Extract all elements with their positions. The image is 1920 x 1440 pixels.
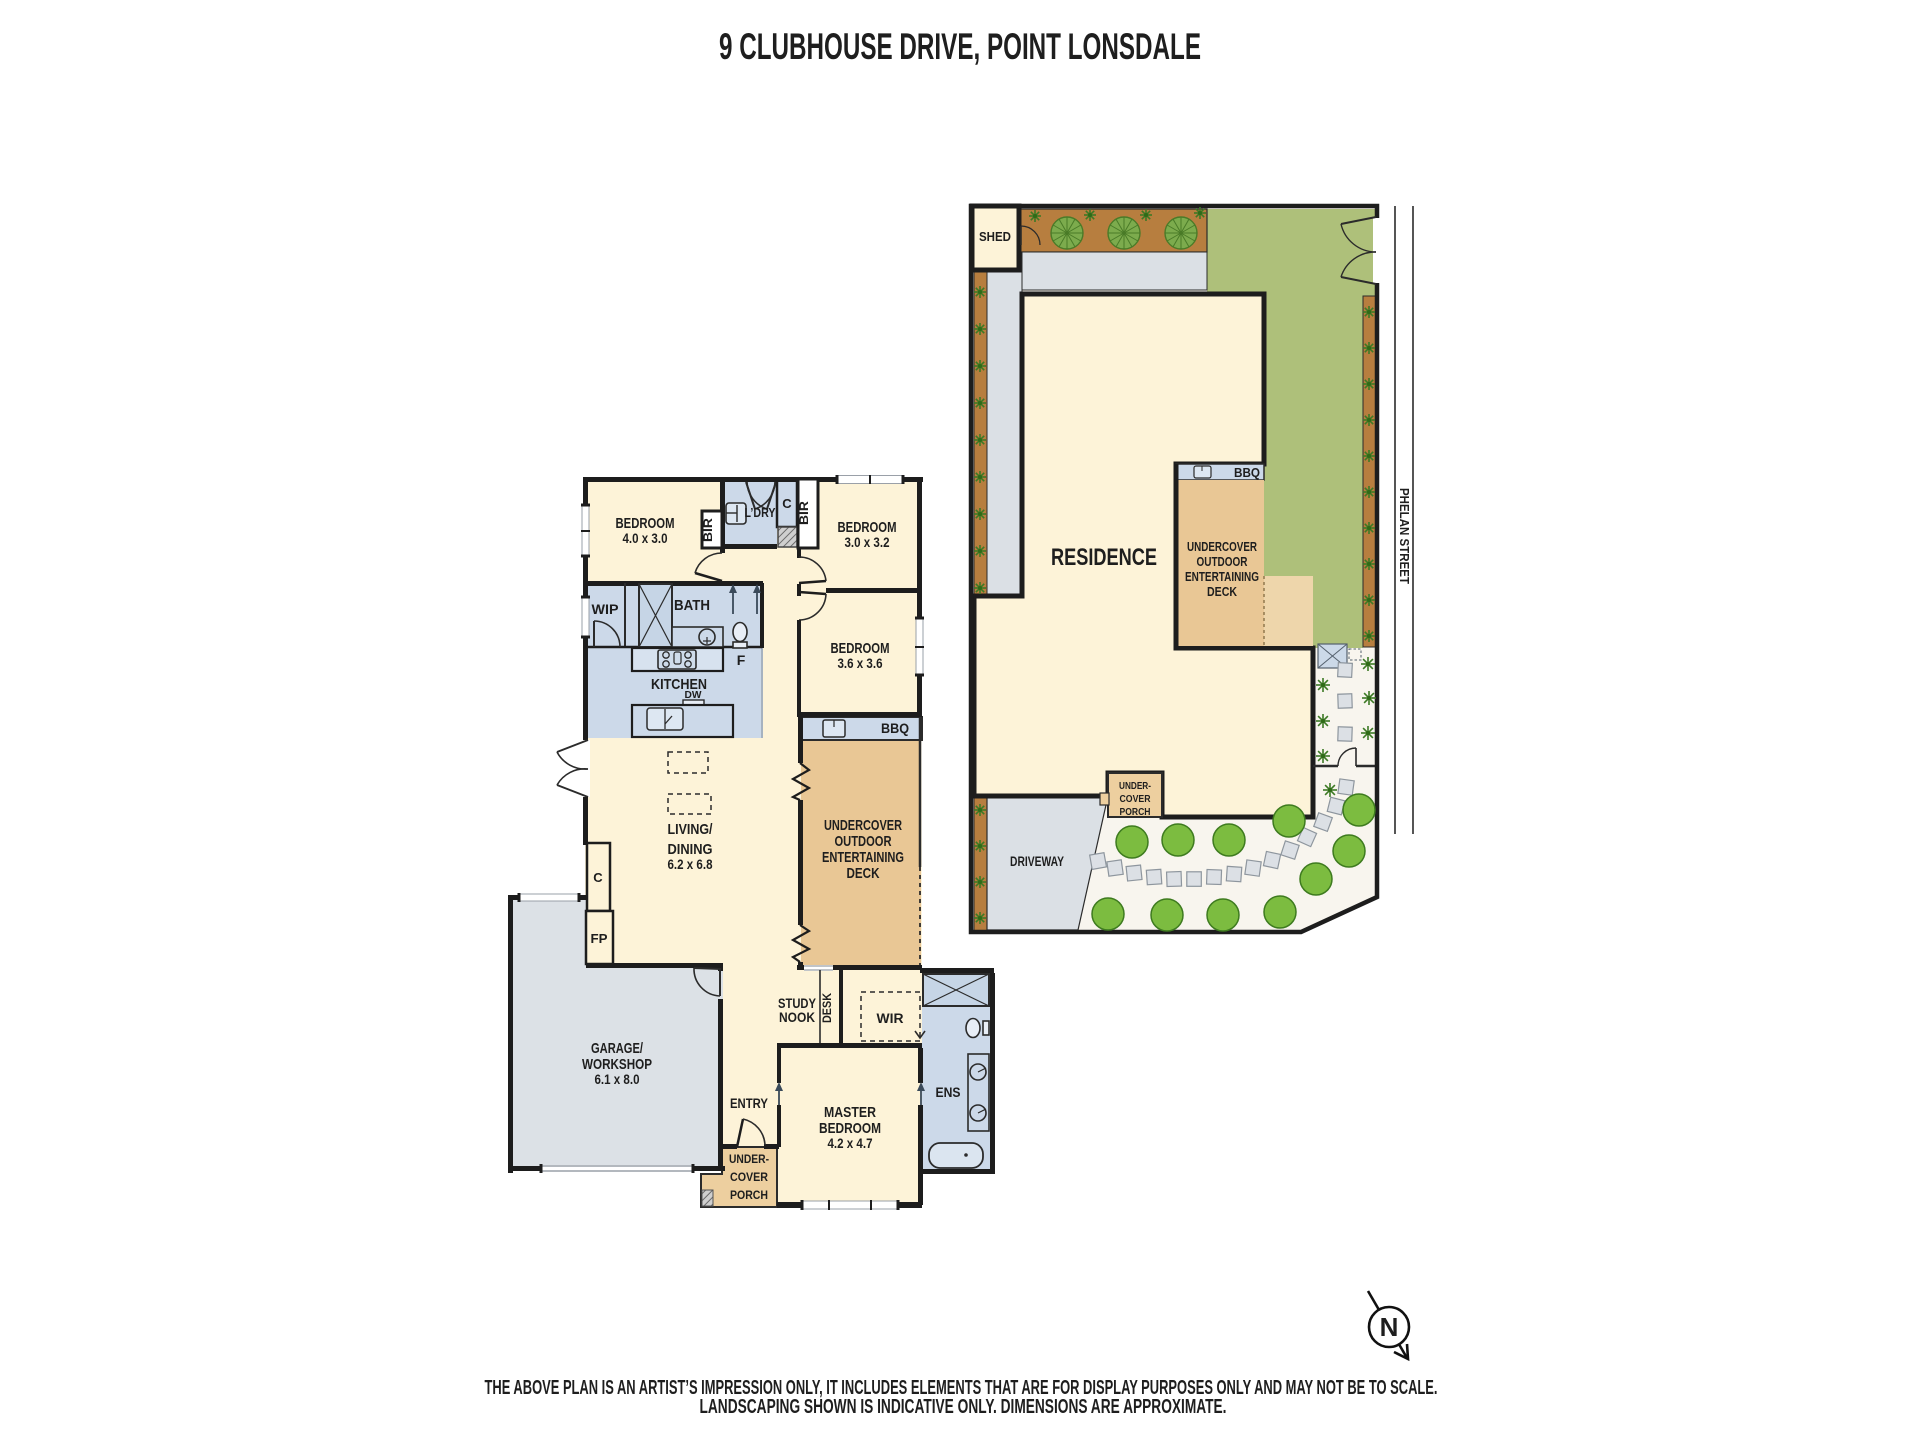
svg-text:WORKSHOP: WORKSHOP xyxy=(582,1056,652,1073)
svg-text:DESK: DESK xyxy=(822,992,834,1023)
svg-text:BIR: BIR xyxy=(701,518,715,542)
svg-text:BIR: BIR xyxy=(797,501,811,525)
svg-text:STUDY: STUDY xyxy=(778,996,816,1011)
svg-text:NOOK: NOOK xyxy=(779,1010,815,1025)
svg-text:BEDROOM: BEDROOM xyxy=(831,640,890,657)
svg-text:UNDERCOVER: UNDERCOVER xyxy=(1187,539,1257,554)
svg-text:FP: FP xyxy=(591,931,608,946)
svg-text:WIR: WIR xyxy=(877,1011,904,1026)
svg-text:N: N xyxy=(1380,1312,1399,1342)
svg-text:3.6 x 3.6: 3.6 x 3.6 xyxy=(838,656,883,671)
svg-text:ENTRY: ENTRY xyxy=(730,1096,768,1111)
svg-text:BEDROOM: BEDROOM xyxy=(838,519,897,536)
svg-text:BBQ: BBQ xyxy=(881,721,909,736)
svg-text:DINING: DINING xyxy=(668,841,713,858)
svg-text:UNDERCOVER: UNDERCOVER xyxy=(824,817,902,834)
svg-text:C: C xyxy=(593,870,603,885)
svg-text:WIP: WIP xyxy=(592,602,619,617)
svg-text:LANDSCAPING SHOWN IS INDICATIV: LANDSCAPING SHOWN IS INDICATIVE ONLY. DI… xyxy=(700,1396,1227,1418)
svg-text:BBQ: BBQ xyxy=(1234,466,1260,480)
svg-text:4.0 x 3.0: 4.0 x 3.0 xyxy=(623,531,668,546)
svg-text:PHELAN STREET: PHELAN STREET xyxy=(1397,488,1412,584)
svg-text:ENTERTAINING: ENTERTAINING xyxy=(822,849,904,866)
svg-text:COVER: COVER xyxy=(730,1172,769,1184)
svg-text:ENTERTAINING: ENTERTAINING xyxy=(1185,569,1259,584)
svg-text:C: C xyxy=(782,496,792,511)
svg-text:6.2 x 6.8: 6.2 x 6.8 xyxy=(668,857,713,872)
svg-text:OUTDOOR: OUTDOOR xyxy=(835,833,892,850)
svg-text:DECK: DECK xyxy=(847,865,880,882)
svg-text:6.1 x 8.0: 6.1 x 8.0 xyxy=(595,1072,640,1087)
svg-text:RESIDENCE: RESIDENCE xyxy=(1051,544,1157,571)
svg-text:UNDER-: UNDER- xyxy=(1119,780,1151,792)
svg-text:UNDER-: UNDER- xyxy=(729,1154,769,1166)
svg-text:PORCH: PORCH xyxy=(1120,806,1151,818)
svg-text:PORCH: PORCH xyxy=(730,1190,768,1202)
svg-text:4.2 x 4.7: 4.2 x 4.7 xyxy=(828,1136,873,1151)
svg-text:OUTDOOR: OUTDOOR xyxy=(1197,554,1248,569)
svg-text:3.0 x 3.2: 3.0 x 3.2 xyxy=(845,535,890,550)
svg-text:DRIVEWAY: DRIVEWAY xyxy=(1010,854,1064,869)
svg-text:MASTER: MASTER xyxy=(824,1104,876,1121)
svg-text:BEDROOM: BEDROOM xyxy=(819,1120,881,1137)
svg-text:COVER: COVER xyxy=(1120,793,1151,805)
svg-text:ENS: ENS xyxy=(936,1084,961,1100)
svg-text:9 CLUBHOUSE DRIVE, POINT LONSD: 9 CLUBHOUSE DRIVE, POINT LONSDALE xyxy=(719,26,1201,67)
svg-text:DW: DW xyxy=(685,690,703,701)
svg-text:DECK: DECK xyxy=(1207,584,1237,599)
svg-text:LIVING/: LIVING/ xyxy=(668,821,714,838)
svg-text:GARAGE/: GARAGE/ xyxy=(591,1040,644,1057)
svg-text:BEDROOM: BEDROOM xyxy=(616,515,675,532)
svg-text:SHED: SHED xyxy=(979,229,1011,244)
svg-text:BATH: BATH xyxy=(674,597,710,614)
svg-text:L’DRY: L’DRY xyxy=(745,505,776,520)
svg-text:F: F xyxy=(737,652,746,668)
